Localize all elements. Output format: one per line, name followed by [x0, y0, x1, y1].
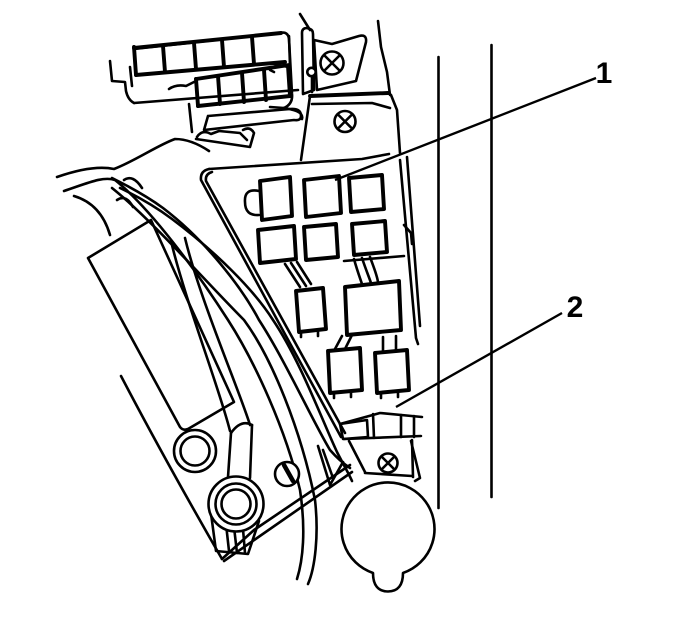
svg-text:2: 2 — [567, 291, 584, 324]
svg-text:1: 1 — [596, 57, 613, 90]
